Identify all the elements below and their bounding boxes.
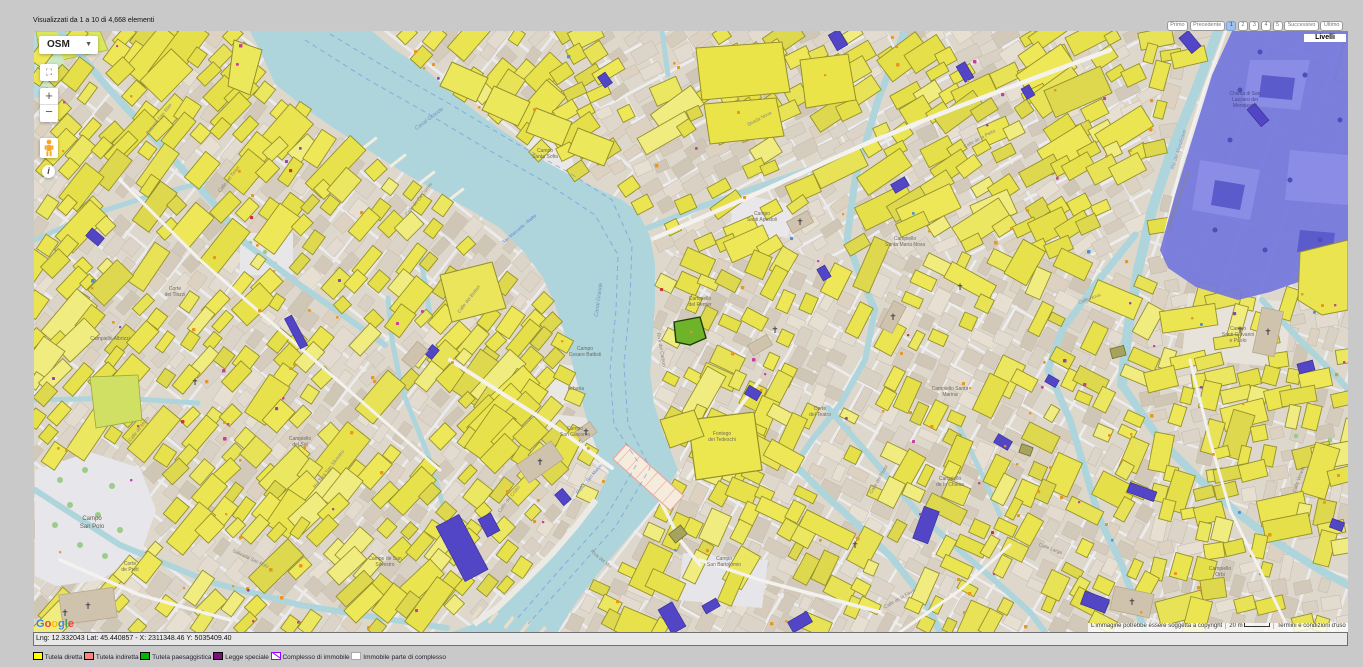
svg-text:San Giacomo: San Giacomo [560, 432, 591, 438]
svg-text:Mendicanti: Mendicanti [1233, 103, 1257, 109]
svg-text:✝: ✝ [1128, 597, 1136, 607]
svg-text:✝: ✝ [1264, 327, 1272, 337]
svg-text:dei Tedeschi: dei Tedeschi [708, 437, 736, 443]
svg-text:Campiello Albrizzi: Campiello Albrizzi [90, 336, 129, 342]
svg-text:✝: ✝ [956, 282, 964, 292]
svg-text:Silvestro: Silvestro [375, 562, 394, 568]
svg-text:Santa Sofia: Santa Sofia [532, 154, 558, 160]
svg-text:Orbi: Orbi [1215, 572, 1224, 578]
svg-text:✝: ✝ [851, 540, 859, 550]
svg-text:del Sol: del Sol [292, 442, 307, 448]
svg-text:del Tiozzi: del Tiozzi [165, 292, 186, 298]
svg-text:Campo: Campo [82, 516, 102, 522]
svg-text:San Bartolomio: San Bartolomio [707, 562, 741, 568]
svg-text:San Polo: San Polo [80, 524, 105, 530]
svg-text:Marina: Marina [942, 392, 958, 398]
svg-text:Cesare Battisti: Cesare Battisti [569, 352, 602, 358]
svg-text:✝: ✝ [84, 601, 92, 611]
svg-text:✝: ✝ [536, 457, 544, 467]
svg-text:✝: ✝ [61, 608, 69, 618]
svg-text:✝: ✝ [771, 325, 779, 335]
svg-text:Santi Apostoli: Santi Apostoli [747, 217, 777, 223]
svg-text:✝: ✝ [889, 312, 897, 322]
svg-text:✝: ✝ [191, 377, 199, 387]
svg-text:del Remer: del Remer [688, 302, 711, 308]
svg-text:e Paolo: e Paolo [1230, 338, 1247, 344]
svg-text:Santa Maria Nova: Santa Maria Nova [885, 242, 925, 248]
svg-text:✝: ✝ [796, 217, 804, 227]
svg-text:Erbaria: Erbaria [568, 386, 584, 392]
svg-text:de la Chiesa: de la Chiesa [936, 482, 964, 488]
svg-text:del Teatro: del Teatro [809, 412, 831, 418]
svg-text:de Preti: de Preti [121, 567, 138, 573]
